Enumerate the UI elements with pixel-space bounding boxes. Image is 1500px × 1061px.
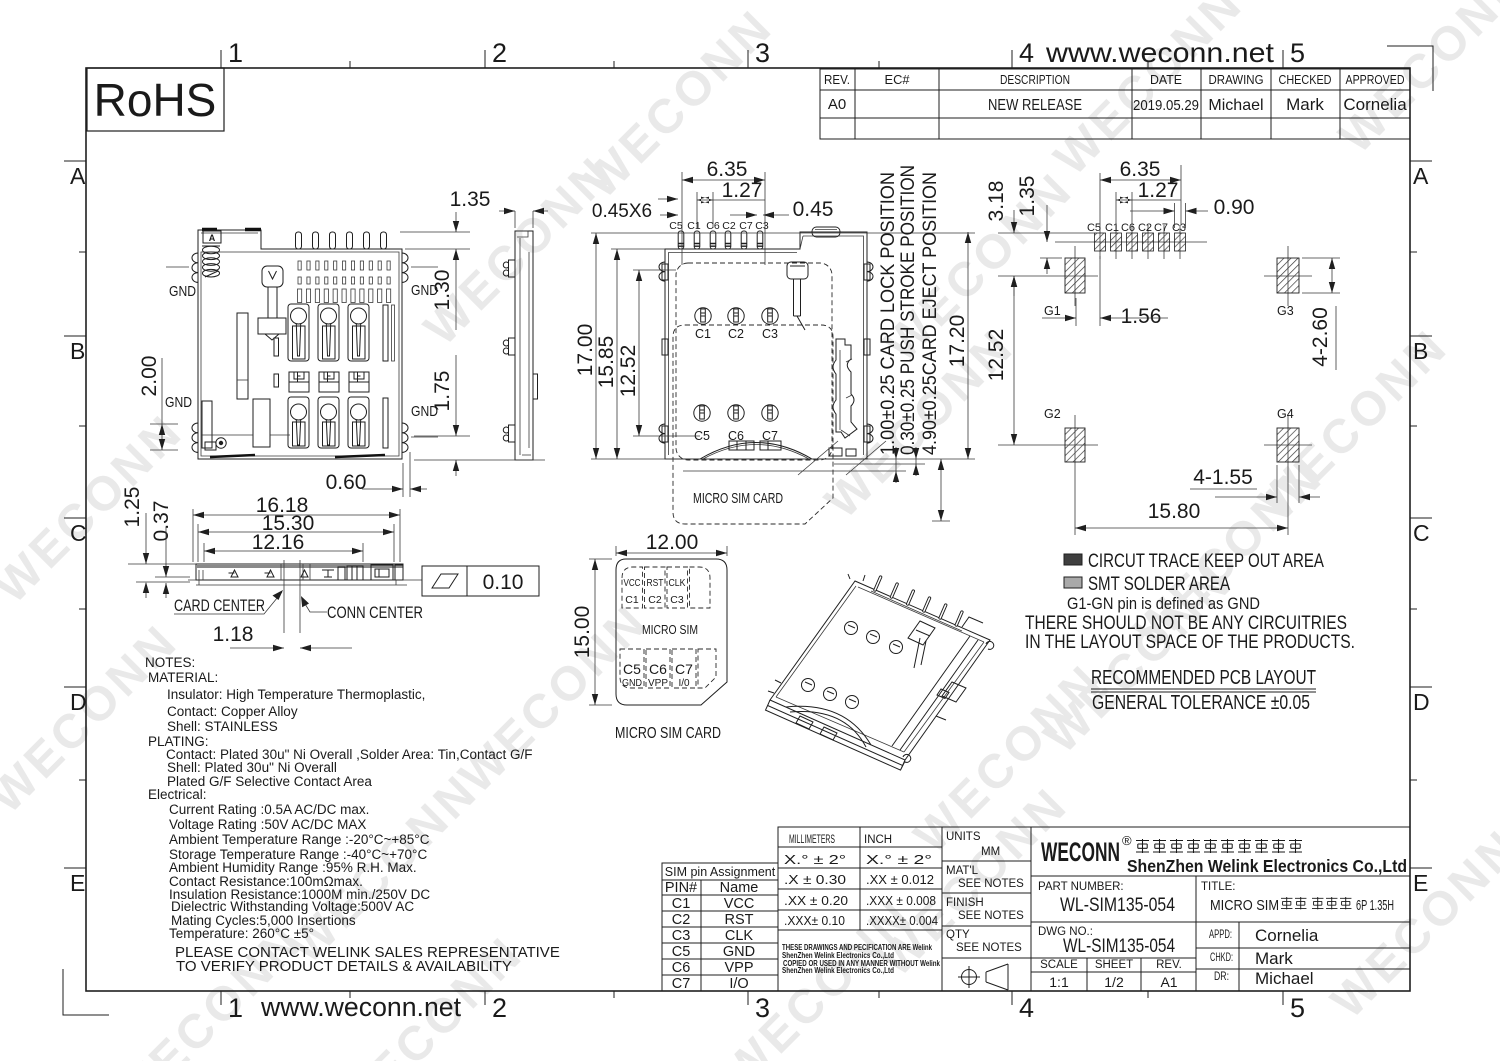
svg-text:12.52: 12.52 [985, 329, 1008, 382]
svg-text:C3: C3 [670, 594, 684, 606]
svg-text:.X ± 0.30: .X ± 0.30 [784, 872, 846, 887]
svg-text:1.56: 1.56 [1121, 305, 1162, 328]
svg-text:SIM pin Assignment: SIM pin Assignment [665, 865, 776, 879]
svg-text:REV.: REV. [824, 73, 850, 87]
svg-text:0.30±0.25 PUSH STROKE POSITION: 0.30±0.25 PUSH STROKE POSITION [898, 165, 919, 455]
svg-text:C6: C6 [1121, 222, 1135, 234]
svg-text:12.00: 12.00 [646, 531, 699, 554]
svg-text:SEE NOTES: SEE NOTES [958, 878, 1024, 890]
svg-text:GND: GND [622, 678, 642, 689]
svg-text:1.30: 1.30 [431, 270, 454, 311]
svg-text:A1: A1 [1160, 974, 1177, 990]
svg-text:GND: GND [165, 394, 192, 411]
svg-text:C: C [1413, 520, 1430, 546]
svg-text:C7: C7 [739, 220, 753, 232]
svg-text:IN THE LAYOUT SPACE OF THE PRO: IN THE LAYOUT SPACE OF THE PRODUCTS. [1025, 632, 1355, 653]
svg-text:Insulator: High Temperature Th: Insulator: High Temperature Thermoplasti… [167, 687, 425, 702]
svg-text:TO VERIFY PRODUCT DETAILS & AV: TO VERIFY PRODUCT DETAILS & AVAILABILITY [176, 958, 512, 975]
svg-text:C: C [70, 520, 87, 546]
svg-text:0.60: 0.60 [326, 471, 367, 494]
svg-text:C1: C1 [672, 896, 691, 912]
svg-text:CARD CENTER: CARD CENTER [174, 596, 265, 615]
svg-text:A: A [209, 233, 216, 243]
svg-text:MICRO SIM CARD: MICRO SIM CARD [693, 490, 783, 507]
svg-text:C3: C3 [762, 327, 778, 341]
svg-text:.XXXX± 0.004: .XXXX± 0.004 [866, 913, 938, 928]
svg-text:C2: C2 [728, 327, 744, 341]
svg-text:C5: C5 [623, 661, 641, 677]
svg-text:5: 5 [1290, 993, 1305, 1023]
svg-text:C6: C6 [672, 960, 691, 976]
svg-text:C3: C3 [1172, 222, 1186, 234]
svg-text:Michael: Michael [1208, 97, 1263, 114]
svg-text:X.° ± 2°: X.° ± 2° [784, 852, 846, 867]
svg-text:RST: RST [725, 912, 754, 928]
svg-text:SEE NOTES: SEE NOTES [956, 942, 1022, 954]
svg-text:.XXX ± 0.008: .XXX ± 0.008 [866, 893, 936, 908]
svg-text:DATE: DATE [1150, 73, 1182, 87]
svg-text:12.52: 12.52 [617, 345, 640, 398]
svg-text:EC#: EC# [885, 73, 910, 87]
svg-text:VCC: VCC [624, 577, 641, 589]
svg-text:1: 1 [228, 993, 243, 1023]
svg-text:Mark: Mark [1255, 949, 1293, 968]
svg-text:1.35: 1.35 [450, 188, 491, 211]
svg-text:4-1.55: 4-1.55 [1193, 466, 1253, 489]
svg-text:MAT'L: MAT'L [946, 865, 979, 877]
svg-text:C3: C3 [672, 928, 691, 944]
svg-text:.XX ± 0.012: .XX ± 0.012 [866, 872, 934, 887]
svg-text:3.18: 3.18 [985, 181, 1008, 222]
svg-text:C7: C7 [762, 429, 778, 443]
svg-text:0.37: 0.37 [150, 501, 173, 542]
svg-text:G1: G1 [1044, 304, 1061, 318]
svg-text:MILLIMETERS: MILLIMETERS [789, 834, 835, 846]
svg-text:C6: C6 [728, 429, 744, 443]
svg-text:C2: C2 [672, 912, 691, 928]
svg-text:CLK: CLK [725, 928, 754, 944]
svg-text:RST: RST [647, 577, 664, 589]
svg-text:CHKD:: CHKD: [1210, 950, 1233, 964]
svg-text:0.45: 0.45 [793, 198, 834, 221]
svg-text:Ambient Temperature Range :-20: Ambient Temperature Range :-20°C~+85°C [169, 832, 430, 847]
svg-text:C7: C7 [675, 661, 693, 677]
svg-text:Name: Name [720, 880, 759, 896]
svg-text:APPD:: APPD: [1209, 927, 1232, 941]
svg-text:3: 3 [755, 38, 770, 68]
svg-text:0.45X6: 0.45X6 [592, 201, 652, 222]
svg-text:DR:: DR: [1214, 969, 1229, 983]
svg-text:WECONN: WECONN [1041, 837, 1120, 867]
svg-text:I/0: I/0 [678, 678, 690, 689]
svg-text:I/O: I/O [729, 976, 748, 992]
svg-text:MATERIAL:: MATERIAL: [148, 670, 218, 685]
svg-text:4: 4 [1019, 38, 1034, 68]
svg-text:15.80: 15.80 [1148, 500, 1201, 523]
svg-text:.XX ± 0.20: .XX ± 0.20 [784, 893, 848, 908]
svg-text:CLK: CLK [669, 577, 686, 589]
svg-text:THERE SHOULD NOT BE ANY CIRCUI: THERE SHOULD NOT BE ANY CIRCUITRIES [1025, 613, 1347, 634]
svg-text:12.16: 12.16 [252, 531, 305, 554]
svg-text:Cornelia: Cornelia [1343, 95, 1407, 114]
svg-text:D: D [70, 689, 87, 715]
svg-text:RoHS: RoHS [94, 74, 217, 126]
svg-text:Mark: Mark [1286, 95, 1324, 114]
svg-text:GENERAL TOLERANCE ±0.05: GENERAL TOLERANCE ±0.05 [1092, 692, 1310, 714]
svg-text:APPROVED: APPROVED [1346, 73, 1405, 87]
svg-text:REV.: REV. [1156, 959, 1182, 971]
svg-text:MICRO SIM: MICRO SIM [1210, 897, 1279, 914]
svg-text:1.25: 1.25 [121, 487, 144, 528]
svg-text:D: D [1413, 689, 1430, 715]
svg-text:2.00: 2.00 [138, 356, 161, 397]
svg-text:2: 2 [492, 38, 507, 68]
svg-text:Temperature: 260°C ±5°: Temperature: 260°C ±5° [169, 926, 314, 941]
svg-text:NOTES:: NOTES: [145, 655, 195, 670]
svg-text:MM: MM [981, 846, 1000, 858]
svg-text:4.90±0.25CARD EJECT POSITION: 4.90±0.25CARD EJECT POSITION [920, 172, 941, 455]
svg-text:TITLE:: TITLE: [1201, 881, 1236, 893]
svg-text:6P 1.35H: 6P 1.35H [1356, 897, 1394, 914]
svg-text:ShenZhen Welink Electronics Co: ShenZhen Welink Electronics Co.,Ltd [782, 966, 894, 975]
svg-text:A0: A0 [828, 96, 846, 113]
svg-text:2019.05.29: 2019.05.29 [1133, 97, 1199, 114]
svg-text:C7: C7 [672, 976, 691, 992]
svg-text:1/2: 1/2 [1104, 974, 1124, 990]
svg-text:X.° ± 2°: X.° ± 2° [866, 852, 932, 867]
svg-text:PART NUMBER:: PART NUMBER: [1038, 881, 1124, 893]
svg-text:A: A [1413, 163, 1429, 189]
svg-text:CONN CENTER: CONN CENTER [327, 603, 423, 622]
svg-text:A: A [70, 163, 86, 189]
svg-text:VPP: VPP [724, 960, 753, 976]
svg-text:CHECKED: CHECKED [1279, 73, 1332, 87]
svg-text:Electrical:: Electrical: [148, 787, 207, 802]
svg-text:1:1: 1:1 [1049, 974, 1069, 990]
svg-text:Michael: Michael [1255, 969, 1314, 988]
svg-text:Current Rating :0.5A AC/DC ma: Current Rating :0.5A AC/DC max. [169, 802, 369, 817]
svg-text:C6: C6 [649, 661, 667, 677]
svg-text:WL-SIM135-054: WL-SIM135-054 [1060, 895, 1175, 916]
svg-text:2: 2 [492, 993, 507, 1023]
svg-text:C1: C1 [1105, 222, 1119, 234]
svg-text:C5: C5 [1087, 222, 1101, 234]
svg-text:Contact: Copper Alloy: Contact: Copper Alloy [167, 704, 298, 719]
svg-text:www.weconn.net: www.weconn.net [260, 992, 461, 1022]
svg-text:Voltage Rating :50V AC/DC MAX: Voltage Rating :50V AC/DC MAX [169, 817, 366, 832]
svg-text:C2: C2 [1138, 222, 1152, 234]
svg-text:Shell: STAINLESS: Shell: STAINLESS [167, 719, 278, 734]
svg-text:GND: GND [723, 944, 755, 960]
svg-text:G3: G3 [1277, 304, 1294, 318]
svg-text:Dielectric Withstanding Voltag: Dielectric Withstanding Voltage:500V AC [171, 899, 414, 914]
svg-text:17.20: 17.20 [946, 315, 969, 368]
svg-text:1.35: 1.35 [1016, 176, 1039, 217]
svg-text:DESCRIPTION: DESCRIPTION [1000, 73, 1070, 87]
svg-text:FINISH: FINISH [946, 897, 984, 909]
svg-text:C3: C3 [755, 220, 769, 232]
svg-text:B: B [1413, 338, 1428, 364]
svg-text:C2: C2 [648, 594, 662, 606]
svg-text:C7: C7 [1154, 222, 1168, 234]
svg-text:C5: C5 [672, 944, 691, 960]
svg-text:ShenZhen Welink Electronics Co: ShenZhen Welink Electronics Co.,Ltd [1127, 856, 1407, 876]
svg-text:5: 5 [1290, 38, 1305, 68]
svg-text:6.35: 6.35 [1120, 158, 1161, 181]
svg-text:WL-SIM135-054: WL-SIM135-054 [1063, 936, 1175, 957]
svg-text:6.35: 6.35 [707, 158, 748, 181]
svg-text:1.18: 1.18 [213, 623, 254, 646]
svg-text:0.10: 0.10 [483, 571, 524, 594]
svg-text:SMT SOLDER AREA: SMT SOLDER AREA [1088, 574, 1230, 595]
svg-text:15.85: 15.85 [595, 336, 618, 389]
svg-text:4-2.60: 4-2.60 [1309, 307, 1332, 367]
svg-text:®: ® [1122, 833, 1132, 848]
svg-text:NEW RELEASE: NEW RELEASE [988, 97, 1082, 114]
svg-text:DRAWING: DRAWING [1209, 73, 1264, 87]
svg-text:GND: GND [169, 283, 196, 300]
svg-text:C1: C1 [625, 594, 639, 606]
svg-text:E: E [1413, 870, 1428, 896]
svg-text:Cornelia: Cornelia [1255, 926, 1319, 945]
svg-text:C1: C1 [687, 220, 701, 232]
svg-text:RECOMMENDED PCB LAYOUT: RECOMMENDED PCB LAYOUT [1091, 667, 1316, 689]
svg-text:17.00: 17.00 [574, 324, 597, 377]
svg-text:G4: G4 [1277, 407, 1294, 421]
svg-text:www.weconn.net: www.weconn.net [1045, 37, 1274, 68]
svg-text:E: E [70, 870, 85, 896]
svg-text:C5: C5 [669, 220, 683, 232]
svg-text:VCC: VCC [724, 896, 755, 912]
svg-text:Ambient Humidity Range :95% R.: Ambient Humidity Range :95% R.H. Max. [169, 860, 417, 875]
svg-text:UNITS: UNITS [946, 831, 981, 843]
svg-text:PIN#: PIN# [665, 880, 697, 896]
svg-text:15.00: 15.00 [571, 606, 594, 659]
svg-text:1: 1 [228, 38, 243, 68]
svg-text:Shell: Plated 30u" Ni Overall: Shell: Plated 30u" Ni Overall [167, 760, 337, 775]
svg-text:SHEET: SHEET [1095, 959, 1133, 971]
svg-text:1.27: 1.27 [722, 179, 763, 202]
svg-text:SEE NOTES: SEE NOTES [958, 910, 1024, 922]
svg-text:1.27: 1.27 [1138, 179, 1179, 202]
svg-text:C2: C2 [722, 220, 736, 232]
svg-text:G2: G2 [1044, 407, 1061, 421]
svg-text:C1: C1 [695, 327, 711, 341]
svg-text:1.75: 1.75 [431, 371, 454, 412]
svg-text:SCALE: SCALE [1040, 959, 1078, 971]
svg-text:.XXX± 0.10: .XXX± 0.10 [784, 913, 845, 928]
svg-text:VPP: VPP [648, 678, 668, 689]
svg-text:G1-GN pin is defined as GND: G1-GN pin is defined as GND [1067, 595, 1260, 613]
svg-text:1.00±0.25 CARD LOCK POSITION: 1.00±0.25 CARD LOCK POSITION [878, 172, 899, 455]
svg-text:CIRCUT TRACE KEEP OUT AREA: CIRCUT TRACE KEEP OUT AREA [1088, 551, 1324, 572]
svg-text:MICRO SIM: MICRO SIM [642, 622, 698, 637]
svg-text:0.90: 0.90 [1214, 196, 1255, 219]
svg-text:QTY: QTY [946, 929, 970, 941]
svg-text:INCH: INCH [864, 834, 892, 846]
svg-text:B: B [70, 338, 85, 364]
svg-text:4: 4 [1019, 993, 1034, 1023]
svg-text:MICRO SIM CARD: MICRO SIM CARD [615, 725, 721, 742]
svg-text:3: 3 [755, 993, 770, 1023]
